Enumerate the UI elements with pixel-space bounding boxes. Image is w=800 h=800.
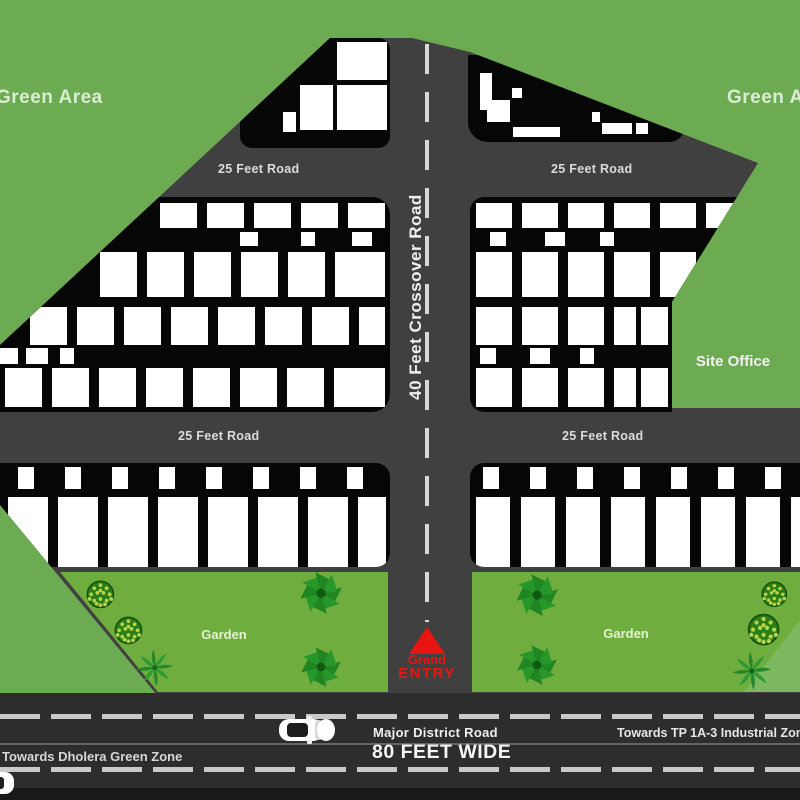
plot-cell (265, 307, 302, 345)
car-icon (277, 714, 337, 746)
plot-cell (718, 467, 734, 489)
major-road-label: Major District Road (373, 725, 498, 740)
green-area-label-left: Green Area (0, 87, 103, 109)
plot-cell (602, 123, 632, 134)
plot-cell (18, 467, 34, 489)
plot-cell (283, 112, 296, 132)
road-label-25-upper-left: 25 Feet Road (218, 162, 299, 176)
plot-cell (522, 368, 558, 407)
plot-cell (487, 100, 510, 122)
plot-cell (65, 467, 81, 489)
plot-cell (614, 252, 650, 297)
road-label-25-lower-right: 25 Feet Road (562, 429, 643, 443)
plot-cell (158, 497, 198, 567)
plot-cell (614, 368, 636, 407)
block-bottom-left (0, 463, 390, 567)
plot-cell (337, 42, 387, 80)
tree-dotted-icon (746, 612, 781, 647)
plot-cell (671, 467, 687, 489)
plot-cell (476, 252, 512, 297)
plot-cell (624, 467, 640, 489)
plot-cell (513, 127, 560, 137)
towards-dholera-label: Towards Dholera Green Zone (2, 749, 182, 764)
plot-cell (287, 368, 324, 407)
plot-cell (301, 232, 315, 246)
plot-cell (26, 348, 48, 364)
plot-cell (490, 232, 506, 246)
towards-industrial-label: Towards TP 1A-3 Industrial Zone> (617, 726, 800, 740)
tree-palm-icon (732, 651, 772, 691)
plot-cell (522, 203, 558, 228)
plot-cell (241, 252, 278, 297)
plot-cell (208, 497, 248, 567)
tree-pinwheel-icon (299, 645, 343, 689)
plot-cell (614, 203, 650, 228)
plot-cell (337, 85, 387, 130)
plot-cell (522, 307, 558, 345)
grand-entry-arrow-icon (409, 627, 445, 654)
site-plan-map: { "labels": { "green_area_left": "Green … (0, 0, 800, 800)
plot-cell (545, 232, 565, 246)
plot-cell (301, 203, 338, 228)
plot-cell (347, 467, 363, 489)
plot-cell (288, 252, 325, 297)
lane-dashes-top (0, 714, 800, 719)
block-top-right (468, 55, 684, 142)
plot-cell (660, 203, 696, 228)
plot-cell (568, 368, 604, 407)
plot-cell (600, 232, 614, 246)
plot-cell (30, 307, 67, 345)
block-mid-left (0, 197, 390, 412)
plot-cell (52, 368, 89, 407)
plot-cell (108, 497, 148, 567)
plot-cell (636, 123, 648, 134)
plot-cell (660, 252, 696, 297)
plot-cell (58, 497, 98, 567)
plot-cell (765, 467, 781, 489)
plot-cell (124, 307, 161, 345)
plot-cell (300, 467, 316, 489)
plot-cell (568, 252, 604, 297)
tree-dotted-icon (113, 615, 144, 646)
plot-cell (193, 368, 230, 407)
plot-cell (358, 497, 386, 567)
plot-cell (592, 112, 600, 122)
plot-cell (476, 497, 510, 567)
major-district-road: Towards Dholera Green Zone Major Distric… (0, 693, 800, 800)
tree-dotted-icon (85, 579, 116, 610)
site-office-label: Site Office (672, 353, 794, 370)
tree-pinwheel-icon (298, 570, 344, 616)
plot-cell (522, 252, 558, 297)
plot-cell (476, 368, 512, 407)
plot-cell (568, 203, 604, 228)
plot-cell (611, 497, 645, 567)
plot-cell (8, 497, 48, 567)
plot-cell (530, 467, 546, 489)
garden-label-right: Garden (596, 626, 656, 641)
plot-cell (483, 467, 499, 489)
plot-cell (656, 497, 690, 567)
plot-cell (706, 203, 734, 228)
plot-cell (312, 307, 349, 345)
plot-cell (207, 203, 244, 228)
plot-cell (577, 467, 593, 489)
plot-cell (146, 368, 183, 407)
tree-palm-icon (136, 649, 173, 686)
plot-cell (171, 307, 208, 345)
plot-cell (334, 368, 385, 407)
plot-cell (476, 307, 512, 345)
garden-label-left: Garden (194, 627, 254, 642)
crossover-road-label: 40 Feet Crossover Road (406, 192, 426, 402)
plot-cell (614, 307, 636, 345)
plot-cell (701, 497, 735, 567)
plot-cell (641, 307, 668, 345)
plot-cell (218, 307, 255, 345)
car-icon-partial (0, 771, 16, 795)
plot-cell (521, 497, 555, 567)
plot-cell (159, 467, 175, 489)
plot-cell (746, 497, 780, 567)
road-label-25-upper-right: 25 Feet Road (551, 162, 632, 176)
plot-cell (308, 497, 348, 567)
plot-cell (77, 307, 114, 345)
plot-cell (0, 348, 18, 364)
plot-cell (359, 307, 385, 345)
plot-cell (147, 252, 184, 297)
block-top-left (240, 38, 390, 148)
plot-cell (530, 348, 550, 364)
plot-cell (240, 368, 277, 407)
plot-cell (253, 467, 269, 489)
block-bottom-right (470, 463, 800, 567)
plot-cell (512, 88, 522, 98)
plot-cell (348, 203, 385, 228)
plot-cell (5, 368, 42, 407)
plot-cell (112, 467, 128, 489)
block-mid-right (470, 197, 758, 412)
plot-cell (160, 203, 197, 228)
plot-cell (476, 203, 512, 228)
plot-cell (99, 368, 136, 407)
plot-cell (206, 467, 222, 489)
plot-cell (100, 252, 137, 297)
road-label-25-lower-left: 25 Feet Road (178, 429, 259, 443)
plot-cell (352, 232, 372, 246)
plot-cell (194, 252, 231, 297)
tree-pinwheel-icon (514, 572, 560, 618)
site-area: 40 Feet Crossover Road 25 Feet Road 25 F… (0, 0, 800, 800)
plot-cell (791, 497, 800, 567)
road-width-label: 80 FEET WIDE (372, 741, 511, 764)
tree-pinwheel-icon (515, 643, 559, 687)
plot-cell (480, 348, 496, 364)
plot-cell (300, 85, 333, 130)
lane-dashes-bottom (0, 767, 800, 772)
plot-cell (254, 203, 291, 228)
plot-cell (641, 368, 668, 407)
plot-cell (60, 348, 74, 364)
plot-cell (258, 497, 298, 567)
grand-entry-label-2: ENTRY (393, 665, 461, 682)
plot-cell (240, 232, 258, 246)
green-area-label-right: Green Area (727, 87, 800, 109)
plot-cell (335, 252, 385, 297)
plot-cell (568, 307, 604, 345)
tree-dotted-icon (760, 580, 789, 609)
plot-cell (580, 348, 594, 364)
road-bottom-strip (0, 788, 800, 800)
plot-cell (566, 497, 600, 567)
